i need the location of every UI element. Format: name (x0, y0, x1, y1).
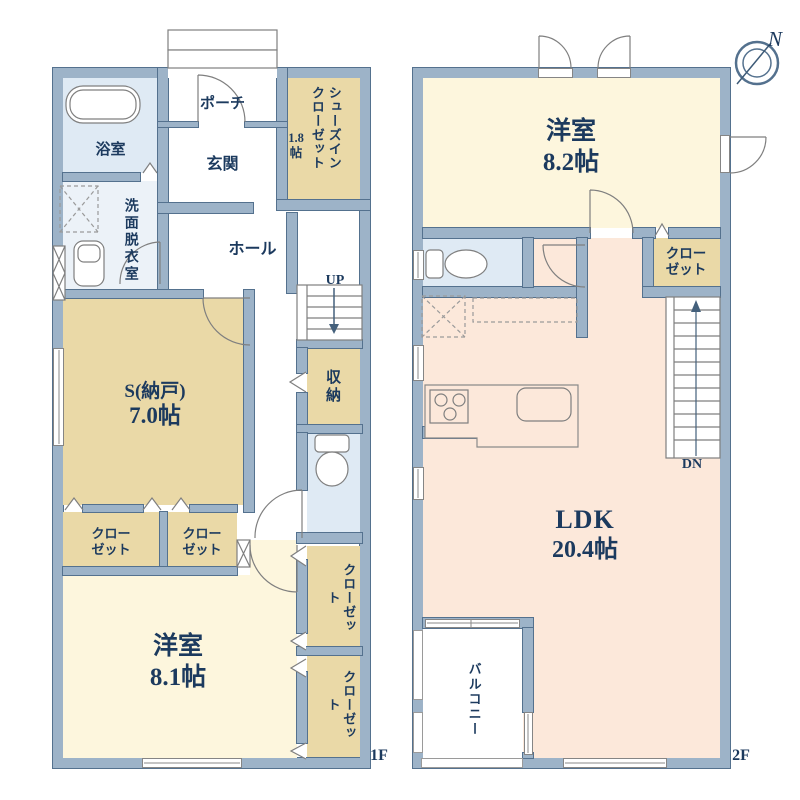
label-bedroom-2f-area: 8.2帖 (491, 148, 651, 178)
entry-steps (168, 30, 277, 68)
pillar-icon (237, 540, 250, 567)
stairs-1f (297, 285, 362, 340)
label-shoes-closet-area: 1.8帖 (283, 131, 309, 161)
kitchen-counter-icon (425, 385, 578, 447)
label-bedroom-2f: 洋室 (491, 117, 651, 147)
label-bathroom: 浴室 (63, 141, 158, 159)
bathtub-icon (66, 86, 140, 123)
label-bedroom-1f: 洋室 (98, 632, 258, 662)
fridge-space-icon (422, 296, 465, 337)
label-hall: ホール (195, 240, 310, 259)
floor-plan-canvas: N ポーチ 浴室 洗面脱衣室 玄関 シューズインクローゼット 1.8帖 ホール … (0, 0, 800, 800)
label-closet-d: クローゼット (325, 664, 356, 746)
cupboard-space-icon (473, 298, 577, 322)
label-up: UP (318, 273, 352, 290)
toilet-icon-2f (426, 250, 487, 278)
label-closet-a: クローゼット (87, 526, 135, 557)
label-dn: DN (670, 457, 714, 474)
label-ldk: LDK (505, 504, 665, 535)
toilet-icon-1f (315, 435, 349, 486)
label-storage-room-area: 7.0帖 (75, 402, 235, 430)
washbasin-icon (74, 241, 104, 286)
label-washroom: 洗面脱衣室 (121, 190, 138, 290)
label-floor2: 2F (724, 746, 758, 765)
label-closet-c: クローゼット (325, 557, 356, 639)
washing-machine-pan-icon (60, 186, 98, 232)
label-bedroom-1f-area: 8.1帖 (98, 663, 258, 693)
label-entrance: 玄関 (158, 155, 287, 174)
label-balcony: バルコニー (466, 653, 482, 745)
label-floor1: 1F (362, 746, 396, 765)
label-ldk-area: 20.4帖 (505, 536, 665, 565)
label-storage-room: S(納戸) (75, 381, 235, 404)
compass-icon: N (736, 27, 783, 84)
stairs-2f (666, 297, 720, 458)
louver-window-icon (53, 246, 65, 300)
compass-north-label: N (767, 27, 783, 51)
label-shoes-closet: シューズインクローゼット (308, 86, 342, 170)
label-closet-2f: クローゼット (661, 246, 711, 278)
label-closet-b: クローゼット (178, 526, 226, 557)
label-storage: 収納 (323, 364, 341, 410)
label-porch: ポーチ (168, 95, 277, 113)
